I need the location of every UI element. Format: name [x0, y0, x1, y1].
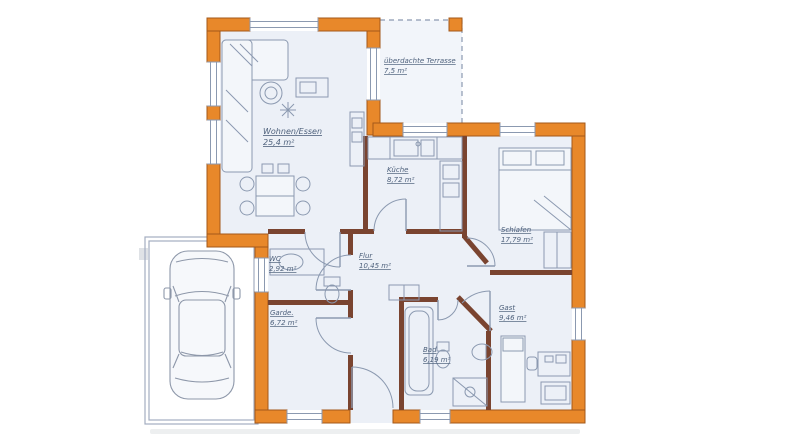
room-label-terrasse-name: überdachte Terrasse: [384, 57, 456, 65]
room-label-wc-area: 2,92 m²: [269, 265, 297, 273]
terrace-post: [449, 18, 462, 31]
room-label-kueche-area: 8,72 m²: [387, 176, 415, 184]
window: [500, 123, 535, 136]
room-label-wc-name: WC: [269, 255, 281, 263]
room-label-garderobe-area: 6,72 m²: [270, 319, 298, 327]
window: [287, 410, 322, 423]
window: [367, 48, 380, 100]
carport: [145, 237, 258, 424]
room-label-bad-area: 6,19 m²: [423, 356, 451, 364]
window: [572, 308, 585, 340]
room-label-gast-name: Gast: [499, 304, 515, 312]
floor-plan: überdachte Terrasse 7,5 m² Wohnen/Essen …: [0, 0, 800, 438]
room-label-bad-name: Bad: [423, 346, 437, 354]
room-label-wohnen-area: 25,4 m²: [263, 138, 295, 147]
room-label-wohnen-name: Wohnen/Essen: [263, 127, 322, 136]
guest-bed: [501, 336, 525, 402]
room-label-schlafen-name: Schlafen: [501, 226, 531, 234]
room-label-gast-area: 9,46 m²: [499, 314, 527, 322]
room-label-kueche-name: Küche: [387, 166, 408, 174]
floor-plan-image: überdachte Terrasse 7,5 m² Wohnen/Essen …: [0, 0, 800, 438]
car-top-view: [164, 251, 240, 399]
window: [207, 120, 220, 164]
room-label-terrasse-area: 7,5 m²: [384, 67, 407, 75]
double-bed: [499, 148, 571, 230]
room-label-flur-name: Flur: [359, 252, 373, 260]
plant: [280, 102, 296, 118]
window: [255, 258, 268, 292]
window: [403, 123, 447, 136]
room-label-flur-area: 10,45 m²: [359, 262, 391, 270]
window: [207, 62, 220, 106]
room-label-schlafen-area: 17,79 m²: [501, 236, 533, 244]
window: [420, 410, 450, 423]
room-label-garderobe-name: Garde.: [270, 309, 294, 317]
window: [250, 18, 318, 31]
